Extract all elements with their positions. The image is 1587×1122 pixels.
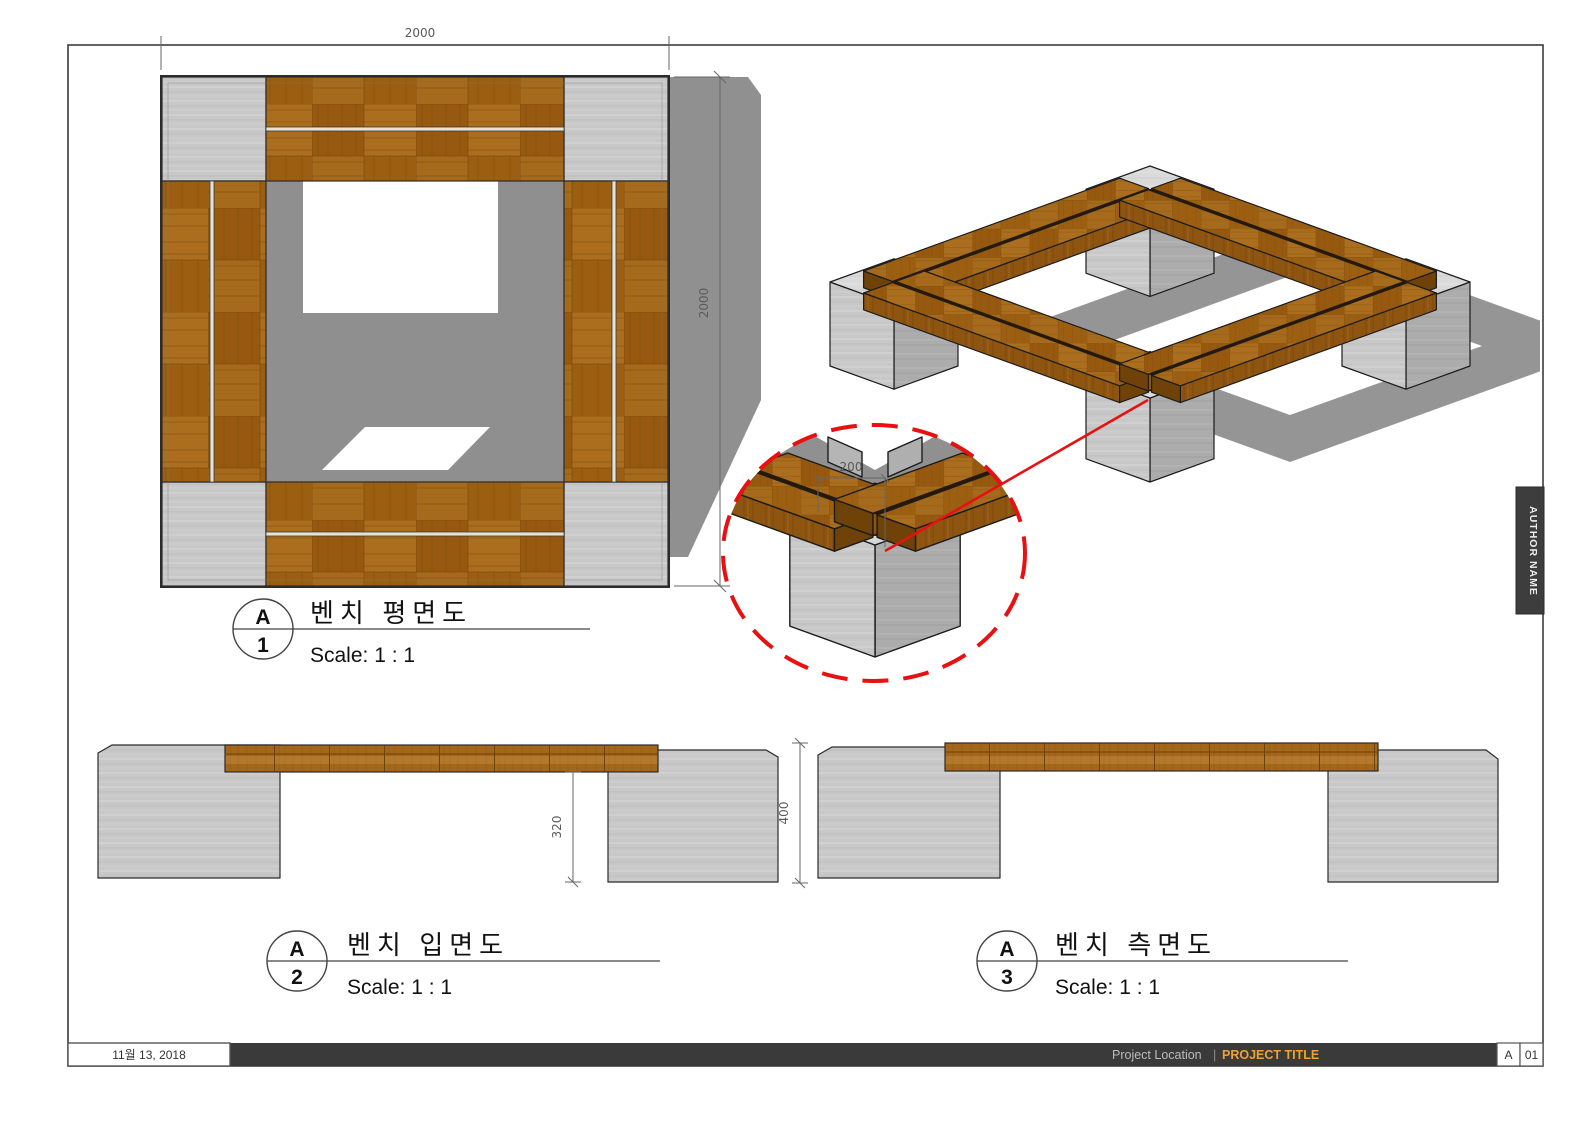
label-plan: A 1 벤치 평면도 Scale: 1 : 1	[233, 599, 590, 667]
side-tag-number: 3	[1001, 966, 1013, 989]
elevation-dimension	[565, 772, 581, 887]
author-tab-label: AUTHOR NAME	[1527, 506, 1539, 596]
elevation-tag-number: 2	[291, 966, 303, 989]
project-title-text: PROJECT TITLE	[1222, 1048, 1319, 1062]
title-bar: 11월 13, 2018 Project Location | PROJECT …	[68, 1043, 1543, 1066]
side-scale: Scale: 1 : 1	[1055, 976, 1160, 999]
concrete-block	[162, 77, 266, 181]
dim-side-height: 400	[777, 802, 791, 825]
concrete-block	[564, 482, 668, 586]
plan-courtyard-light	[303, 181, 498, 313]
plan-view: 2000 2000	[161, 26, 761, 592]
sheet-canvas: 2000 2000	[0, 0, 1587, 1122]
label-side: A 3 벤치 측면도 Scale: 1 : 1	[977, 931, 1348, 999]
elevation-scale: Scale: 1 : 1	[347, 976, 452, 999]
plan-tag-number: 1	[257, 634, 269, 657]
drawing-sheet: 2000 2000	[0, 0, 1587, 1122]
elevation-view: 320	[98, 745, 778, 887]
author-tab: AUTHOR NAME	[1516, 487, 1544, 614]
side-plank	[945, 743, 1378, 771]
dim-plan-width: 2000	[405, 26, 436, 40]
dim-plan-depth: 2000	[697, 288, 711, 319]
side-title: 벤치 측면도	[1055, 931, 1217, 960]
dim-elev-clearance: 320	[550, 816, 564, 839]
plan-scale: Scale: 1 : 1	[310, 644, 415, 667]
plan-title: 벤치 평면도	[310, 599, 472, 628]
elevation-tag-letter: A	[289, 938, 304, 961]
concrete-block	[162, 482, 266, 586]
side-dimension	[792, 738, 808, 888]
side-view: 400	[777, 738, 1498, 888]
label-elevation: A 2 벤치 입면도 Scale: 1 : 1	[267, 931, 660, 999]
project-location-text: Project Location	[1112, 1048, 1202, 1062]
concrete-block	[564, 77, 668, 181]
dim-detail-offset: 200	[840, 460, 863, 474]
sheet-number-text: 01	[1525, 1048, 1539, 1062]
elevation-plank	[225, 745, 658, 772]
plan-tag-letter: A	[255, 606, 270, 629]
revision-text: A	[1504, 1048, 1512, 1062]
elevation-title: 벤치 입면도	[347, 931, 509, 960]
detail-view: 200	[707, 400, 1148, 681]
project-divider: |	[1213, 1048, 1216, 1062]
plan-width-dimension	[161, 36, 669, 70]
side-tag-letter: A	[999, 938, 1014, 961]
date-text: 11월 13, 2018	[112, 1048, 186, 1062]
